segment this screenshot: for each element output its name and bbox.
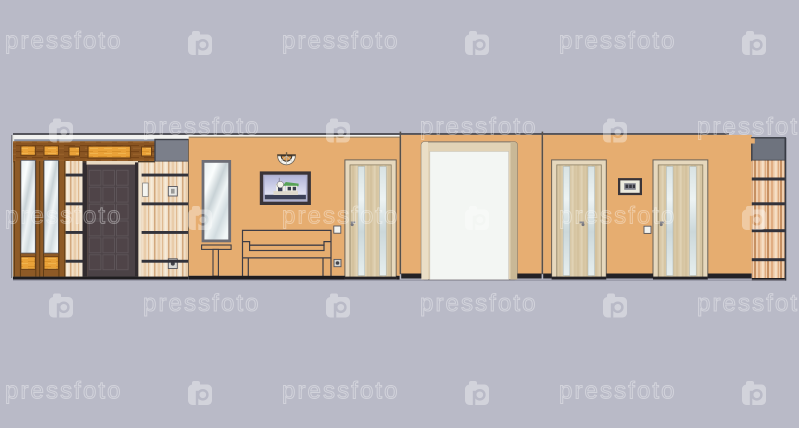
svg-text:pressfoto: pressfoto xyxy=(143,114,261,141)
svg-text:pressfoto: pressfoto xyxy=(420,290,538,317)
svg-text:pressfoto: pressfoto xyxy=(420,114,538,141)
svg-text:pressfoto: pressfoto xyxy=(559,203,677,230)
svg-text:pressfoto: pressfoto xyxy=(282,203,400,230)
svg-text:pressfoto: pressfoto xyxy=(697,290,799,317)
svg-text:pressfoto: pressfoto xyxy=(559,28,677,55)
svg-text:pressfoto: pressfoto xyxy=(5,203,123,230)
svg-text:pressfoto: pressfoto xyxy=(5,378,123,405)
svg-text:pressfoto: pressfoto xyxy=(143,290,261,317)
svg-text:pressfoto: pressfoto xyxy=(282,28,400,55)
svg-text:pressfoto: pressfoto xyxy=(559,378,677,405)
svg-text:pressfoto: pressfoto xyxy=(282,378,400,405)
svg-text:pressfoto: pressfoto xyxy=(697,114,799,141)
svg-text:pressfoto: pressfoto xyxy=(5,28,123,55)
